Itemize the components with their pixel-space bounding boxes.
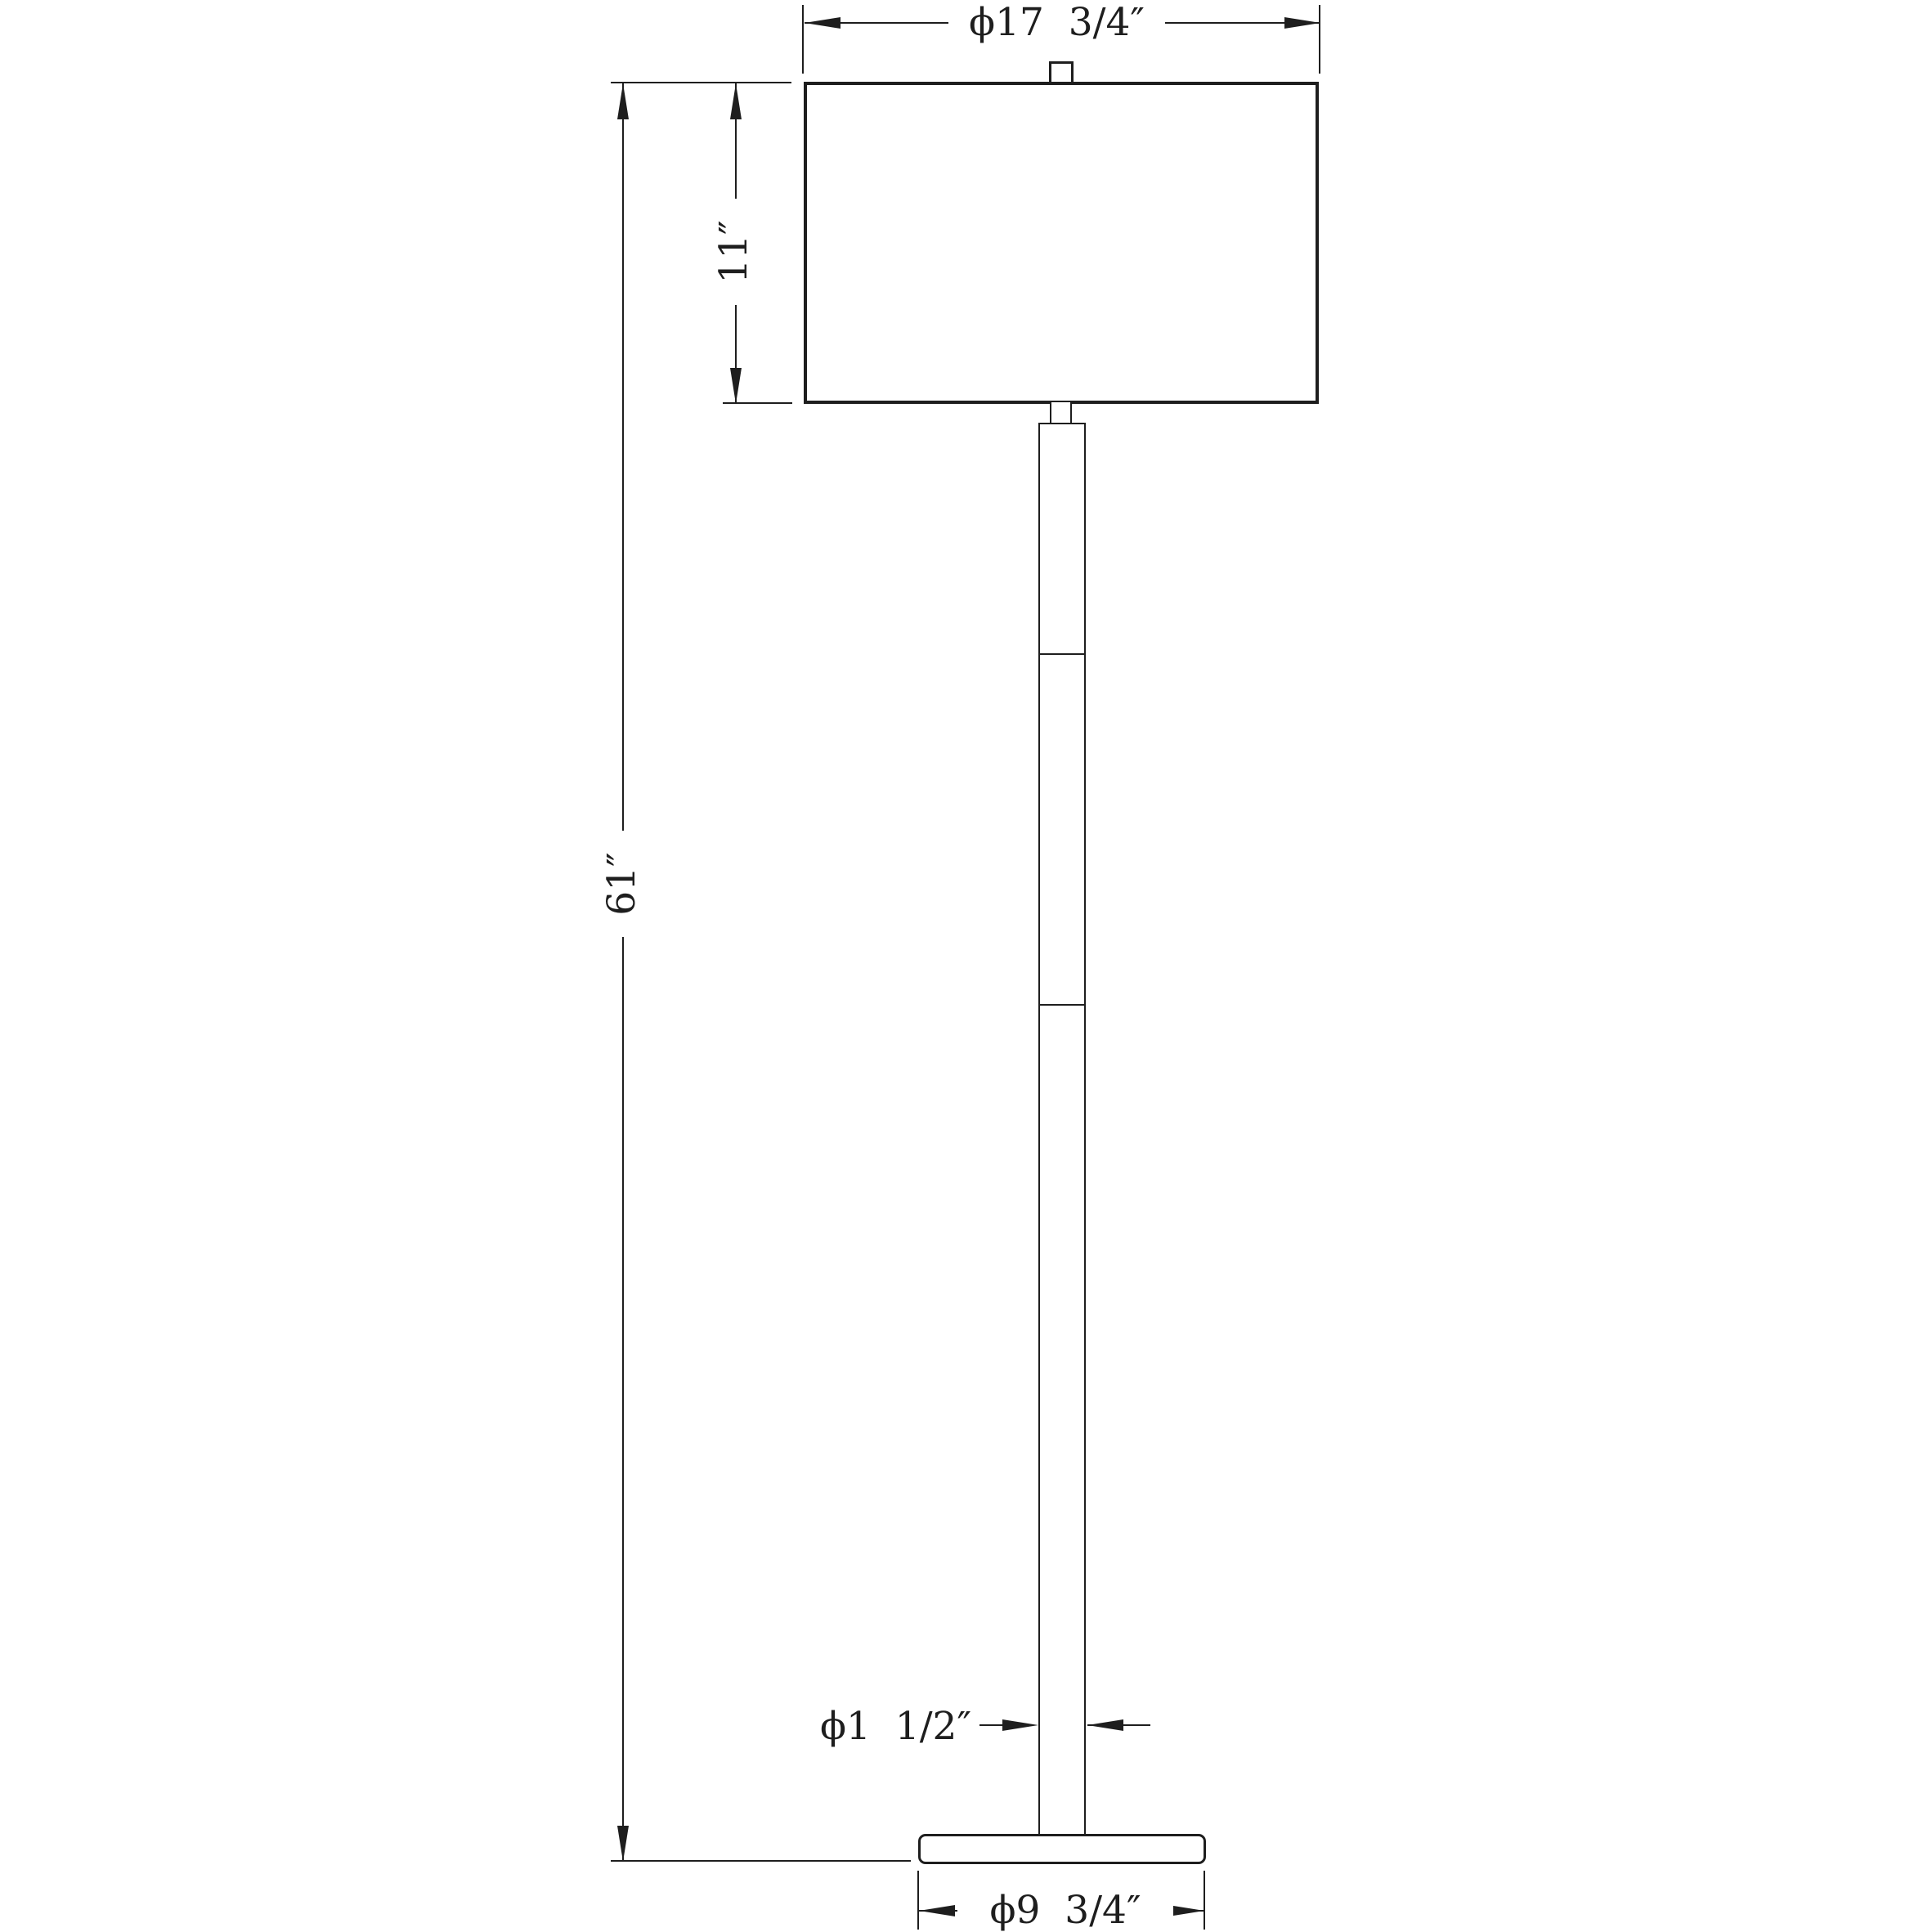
overall-height-dimension-line: [622, 83, 624, 1862]
pole-diameter-arrow-right-icon: [1002, 1719, 1038, 1731]
base-diameter-extension-line-right: [1204, 1871, 1205, 1930]
pole-joint-lower: [1038, 1004, 1086, 1006]
lamp-pole-outline: [1038, 423, 1086, 1834]
overall-height-arrow-up-icon: [617, 83, 629, 119]
overall-height-label: 61″: [602, 831, 644, 937]
base-diameter-arrow-right-icon: [1168, 1905, 1204, 1916]
base-diameter-extension-line-left: [917, 1871, 919, 1930]
base-diameter-label: ϕ9 3/4″: [957, 1890, 1173, 1931]
shade-height-arrow-down-icon: [730, 368, 742, 404]
lamp-finial-outline: [1049, 61, 1074, 83]
shade-height-arrow-up-icon: [730, 83, 742, 119]
lamp-shade-outline: [804, 82, 1319, 404]
shade-diameter-arrow-right-icon: [1284, 17, 1320, 29]
lamp-base-outline: [918, 1834, 1206, 1864]
shade-diameter-extension-line-right: [1319, 5, 1320, 74]
top-extension-line: [611, 82, 791, 83]
shade-diameter-arrow-left-icon: [805, 17, 840, 29]
overall-height-arrow-down-icon: [617, 1826, 629, 1862]
shade-diameter-label: ϕ17 3/4″: [948, 2, 1165, 43]
overall-height-extension-line-bottom: [611, 1860, 911, 1862]
base-diameter-arrow-left-icon: [919, 1905, 955, 1916]
lamp-dimension-drawing: ϕ17 3/4″ 11″ 61″ ϕ1 1/2″ ϕ9 3/4″: [0, 0, 1932, 1932]
pole-joint-upper: [1038, 653, 1086, 655]
lamp-neck-outline: [1050, 402, 1072, 424]
shade-diameter-extension-line-left: [802, 5, 804, 74]
pole-diameter-label: ϕ1 1/2″: [812, 1706, 979, 1747]
pole-diameter-leader-right: [1087, 1724, 1150, 1726]
shade-height-label: 11″: [714, 199, 756, 305]
